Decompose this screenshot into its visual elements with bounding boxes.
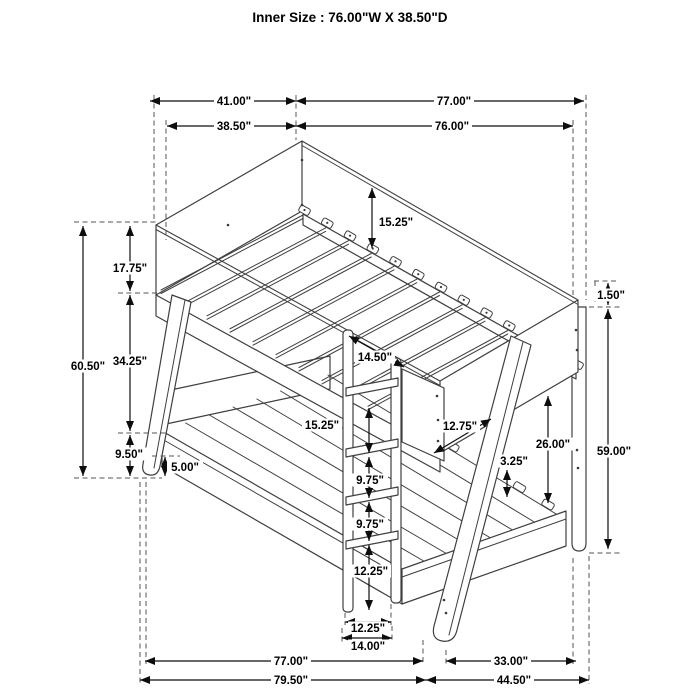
dim-label: 41.00"	[217, 96, 251, 108]
screw-dot	[576, 449, 579, 452]
back-guardrail-bar	[302, 141, 578, 300]
ladder-rung	[346, 378, 398, 396]
screw-dot	[577, 467, 580, 470]
dim-lower-length: 77.00"	[145, 655, 423, 669]
slat-tab-dot	[326, 222, 328, 224]
dim-label: 14.00"	[351, 641, 385, 653]
dim-label: 38.50"	[217, 121, 251, 133]
dim-label: 44.50"	[497, 675, 531, 687]
dim-headboard-panel: 17.75"	[110, 226, 150, 291]
dim-overall-height-left: 60.50"	[68, 226, 108, 476]
dim-label: 17.75"	[113, 263, 147, 275]
dim-label: 33.00"	[494, 656, 528, 668]
screw-dot	[576, 349, 579, 352]
screw-dot	[437, 419, 440, 422]
dim-label: 34.25"	[113, 356, 147, 368]
dim-top-depth-overall: 41.00"	[150, 95, 296, 109]
screw-dot	[301, 159, 304, 162]
screw-dot	[301, 204, 304, 207]
back-guardrail-bar	[302, 146, 578, 305]
dim-label: 60.50"	[71, 361, 105, 373]
dim-post-height: 59.00"	[594, 309, 634, 549]
top-bunk	[156, 141, 584, 472]
dim-label: 59.00"	[597, 446, 631, 458]
dim-ladder-width-outer: 14.00"	[342, 638, 392, 653]
dim-top-length-overall: 77.00"	[296, 95, 584, 109]
dim-overall-extension: 44.50"	[426, 674, 589, 688]
dim-side-extension: 33.00"	[446, 655, 576, 669]
page-title: Inner Size : 76.00"W X 38.50"D	[252, 10, 447, 25]
screw-dot	[227, 224, 230, 227]
dim-label: 77.00"	[437, 96, 471, 108]
slat-line	[253, 266, 394, 341]
dim-label: 14.50"	[358, 352, 392, 364]
dim-top-depth-inner: 38.50"	[167, 120, 296, 134]
dim-label: 76.00"	[435, 121, 469, 133]
slat-tab-dot	[394, 260, 396, 262]
screw-dot	[445, 612, 448, 615]
slat-tab-dot	[303, 209, 305, 211]
headboard-panel	[156, 141, 302, 295]
screw-dot	[443, 599, 446, 602]
dim-label: 12.25"	[351, 623, 385, 635]
dim-label: 12.75"	[443, 421, 477, 433]
dim-label: 9.75"	[356, 519, 384, 531]
slat-line	[207, 244, 349, 319]
screw-dot	[575, 329, 578, 332]
slat-tab-dot	[485, 312, 487, 314]
ladder-rung	[346, 487, 398, 505]
dim-label: 5.00"	[171, 462, 199, 474]
ladder-rung	[346, 531, 398, 549]
slat-line	[253, 270, 394, 345]
slat-tab-dot	[508, 324, 510, 326]
dim-label: 1.50"	[597, 290, 625, 302]
dim-ladder-width-inner: 12.25"	[345, 622, 391, 636]
dim-overall-length: 79.50"	[140, 674, 426, 688]
dim-lower-rail-slat: 3.25"	[496, 455, 532, 498]
screw-dot	[437, 440, 440, 443]
ladder-rung	[346, 439, 398, 457]
dim-lower-clearance: 26.00"	[533, 396, 573, 503]
dim-top-length-inner: 76.00"	[296, 120, 573, 134]
ladder-right-rail	[391, 358, 401, 603]
dim-label: 26.00"	[536, 439, 570, 451]
slat-tab-dot	[463, 299, 465, 301]
screw-dot	[436, 395, 439, 398]
lower-rail-inner-line	[162, 439, 402, 577]
dim-post-top-gap: 1.50"	[594, 283, 628, 305]
slat-line	[230, 254, 371, 329]
slat-tab-dot	[440, 286, 442, 288]
diagram-canvas: Inner Size : 76.00"W X 38.50"D	[0, 0, 700, 700]
deck-tab	[513, 481, 527, 493]
dim-label: 77.00"	[274, 656, 308, 668]
dim-label: 3.25"	[500, 456, 528, 468]
slat-line	[230, 257, 371, 332]
dim-label: 15.25"	[305, 420, 339, 432]
dim-bunk-gap: 34.25"	[110, 295, 150, 431]
dim-label: 12.25"	[354, 566, 388, 578]
dim-label: 79.50"	[274, 675, 308, 687]
dim-label: 9.75"	[356, 475, 384, 487]
dim-label: 15.25"	[379, 217, 413, 229]
slat-tab-dot	[417, 273, 419, 275]
dim-label: 9.50"	[115, 449, 143, 461]
dim-base-height: 9.50"	[111, 435, 147, 476]
dim-rail-to-slat: 15.25"	[372, 188, 416, 248]
bunk-bed-dimension-diagram: Inner Size : 76.00"W X 38.50"D	[0, 0, 700, 700]
slat-tab-dot	[349, 235, 351, 237]
